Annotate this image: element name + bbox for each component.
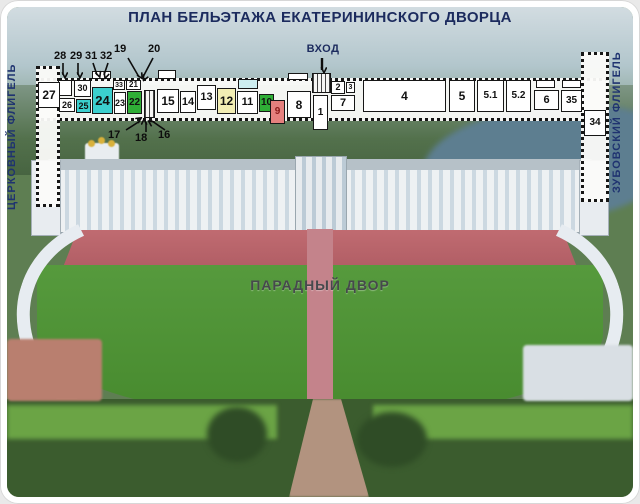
entrance-label: ВХОД — [299, 43, 347, 55]
callout-19: 19 — [114, 43, 126, 55]
annex-box — [288, 73, 308, 80]
room-4: 4 — [363, 80, 446, 112]
infographic: ПЛАН БЕЛЬЭТАЖА ЕКАТЕРИНИНСКОГО ДВОРЦА ЦЕ… — [0, 0, 640, 504]
tree-cluster — [357, 412, 427, 467]
room-35: 35 — [561, 90, 582, 112]
annex-box — [536, 80, 555, 88]
room-33: 33 — [113, 80, 125, 90]
callout-16: 16 — [158, 129, 170, 141]
room-23: 23 — [114, 92, 126, 114]
entrance-vestibule — [312, 73, 331, 93]
room-22: 22 — [127, 91, 142, 114]
annex-box — [562, 80, 581, 88]
gold-dome — [88, 140, 95, 147]
gold-dome — [98, 137, 105, 144]
callout-31: 31 — [85, 50, 97, 62]
room-24: 24 — [92, 87, 113, 114]
room-11: 11 — [237, 91, 258, 114]
tree-cluster — [207, 407, 267, 462]
courtyard-label: ПАРАДНЫЙ ДВОР — [0, 277, 640, 293]
room-21: 21 — [126, 80, 141, 90]
room-26: 26 — [59, 98, 75, 112]
right-outbuilding — [523, 345, 633, 401]
stairs — [144, 90, 155, 118]
palace-center-risalit — [295, 156, 347, 234]
callout-28: 28 — [54, 50, 66, 62]
room-5-1: 5.1 — [477, 80, 504, 112]
callout-20: 20 — [148, 43, 160, 55]
room-34: 34 — [584, 110, 606, 136]
room-13: 13 — [197, 85, 216, 110]
callout-32: 32 — [100, 50, 112, 62]
room-8: 8 — [287, 91, 311, 118]
annex-box — [158, 70, 176, 79]
room-30: 30 — [74, 80, 91, 97]
room-3: 3 — [346, 82, 355, 93]
gold-dome — [108, 140, 115, 147]
room-6: 6 — [534, 90, 559, 110]
callout-17: 17 — [108, 129, 120, 141]
room-7: 7 — [331, 95, 355, 111]
room-27: 27 — [38, 82, 60, 108]
callout-29: 29 — [70, 50, 82, 62]
annex-box — [58, 80, 72, 96]
room-14: 14 — [180, 91, 196, 113]
left-outbuilding — [7, 339, 102, 401]
room-9: 9 — [270, 100, 285, 124]
central-path — [307, 229, 333, 421]
left-wing-label: ЦЕРКОВНЫЙ ФЛИГЕЛЬ — [6, 62, 18, 212]
right-wing-label: ЗУБОВСКИЙ ФЛИГЕЛЬ — [611, 50, 623, 194]
room-15: 15 — [157, 89, 179, 113]
page-title: ПЛАН БЕЛЬЭТАЖА ЕКАТЕРИНИНСКОГО ДВОРЦА — [0, 9, 640, 26]
room-5-2: 5.2 — [506, 80, 531, 112]
room-5: 5 — [449, 80, 475, 112]
annex-box-lightblue — [238, 79, 258, 89]
room-25: 25 — [76, 99, 91, 113]
callout-18: 18 — [135, 132, 147, 144]
annex-box — [92, 71, 111, 79]
room-2: 2 — [331, 81, 345, 94]
room-1: 1 — [313, 95, 328, 130]
room-12: 12 — [217, 88, 236, 114]
